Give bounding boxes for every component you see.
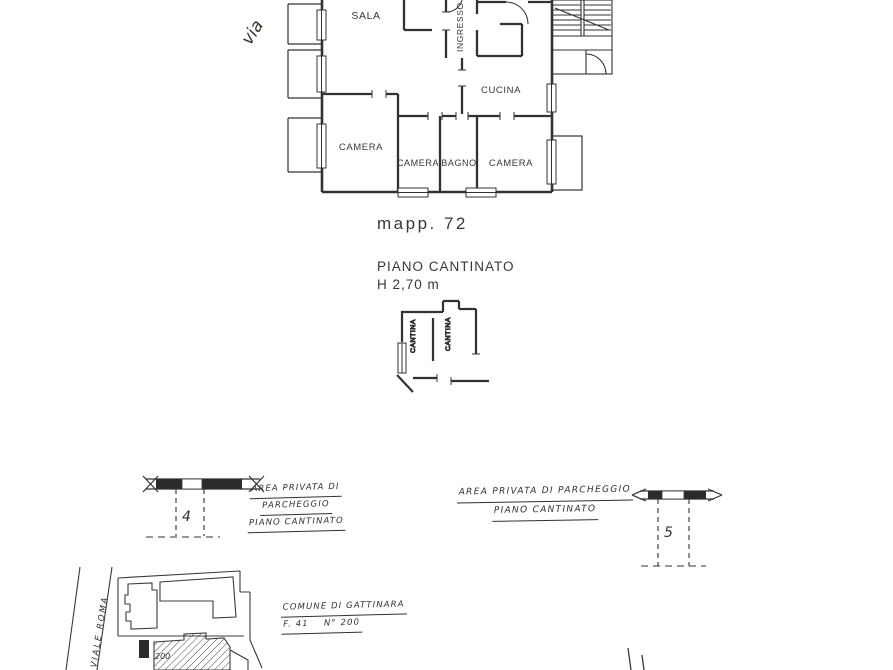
parking-right-note: AREA PRIVATA DI PARCHEGGIO PIANO CANTINA…: [455, 481, 636, 522]
label-bagno: BAGNO: [441, 158, 477, 168]
parking-space-right: 5: [632, 489, 722, 566]
street-label-top: via: [238, 17, 268, 49]
building-outline-a: [125, 583, 157, 629]
plan-drawing: via SALA: [0, 0, 893, 670]
street-label-map: VIALE ROMA: [89, 595, 110, 668]
parking-right-wall-fill-a: [648, 491, 662, 499]
parking-left-wall-gap: [182, 479, 202, 489]
site-map: VIALE ROMA 200: [66, 567, 262, 670]
door-ticks: [372, 12, 514, 120]
parking-right-wall-fill-b: [684, 491, 706, 499]
parking-right-number: 5: [664, 525, 673, 541]
site-map-caption: COMUNE DI GATTINARA F. 41 N° 200: [281, 597, 412, 634]
note-line: PIANO CANTINATO: [492, 501, 599, 522]
parking-left-wall-fill-b: [202, 479, 242, 489]
parking-right-dashed-bounds: [658, 499, 689, 566]
parking-left-note: AREA PRIVATA DI PARCHEGGIO PIANO CANTINA…: [239, 480, 352, 534]
note-line: PIANO CANTINATO: [247, 514, 346, 534]
parcel-label: mapp. 72: [377, 214, 468, 233]
stair-direction-line: [555, 8, 609, 30]
staircase: [552, 0, 612, 74]
basement-plan: CANTINA CANTINA: [397, 301, 489, 392]
caption-line: F. 41 N° 200: [281, 616, 362, 635]
label-camera-3: CAMERA: [489, 158, 533, 169]
label-camera-1: CAMERA: [339, 142, 383, 153]
label-camera-2: CAMERA: [397, 158, 439, 168]
site-edge-line: [230, 650, 248, 670]
cadastral-plan-page: via SALA: [0, 0, 893, 670]
parking-left-number: 4: [182, 509, 191, 525]
label-cantina-1: CANTINA: [410, 319, 417, 353]
building-number: 200: [155, 652, 170, 661]
note-line: AREA PRIVATA DI PARCHEGGIO: [457, 481, 634, 503]
note-line: PARCHEGGIO: [260, 497, 332, 516]
label-sala: SALA: [351, 10, 380, 22]
basement-height: H 2,70 m: [377, 277, 440, 292]
caption-line: COMUNE DI GATTINARA: [281, 597, 407, 617]
parking-right-wall-gap: [662, 491, 684, 499]
basement-title: PIANO CANTINATO: [377, 259, 515, 274]
parking-left-wall-fill-a: [156, 479, 182, 489]
stair-door-arc: [586, 50, 606, 74]
label-ingresso: INGRESSO: [455, 2, 465, 52]
label-cucina: CUCINA: [481, 85, 521, 96]
basement-window: [398, 343, 406, 373]
small-solid-building: [139, 640, 149, 658]
label-cantina-2: CANTINA: [445, 317, 452, 351]
room-labels: SALA INGRESSO CUCINA CAMERA CAMERA BAGNO…: [339, 2, 533, 169]
building-outline-b: [160, 577, 236, 618]
bottom-edge-marks: [628, 648, 644, 670]
